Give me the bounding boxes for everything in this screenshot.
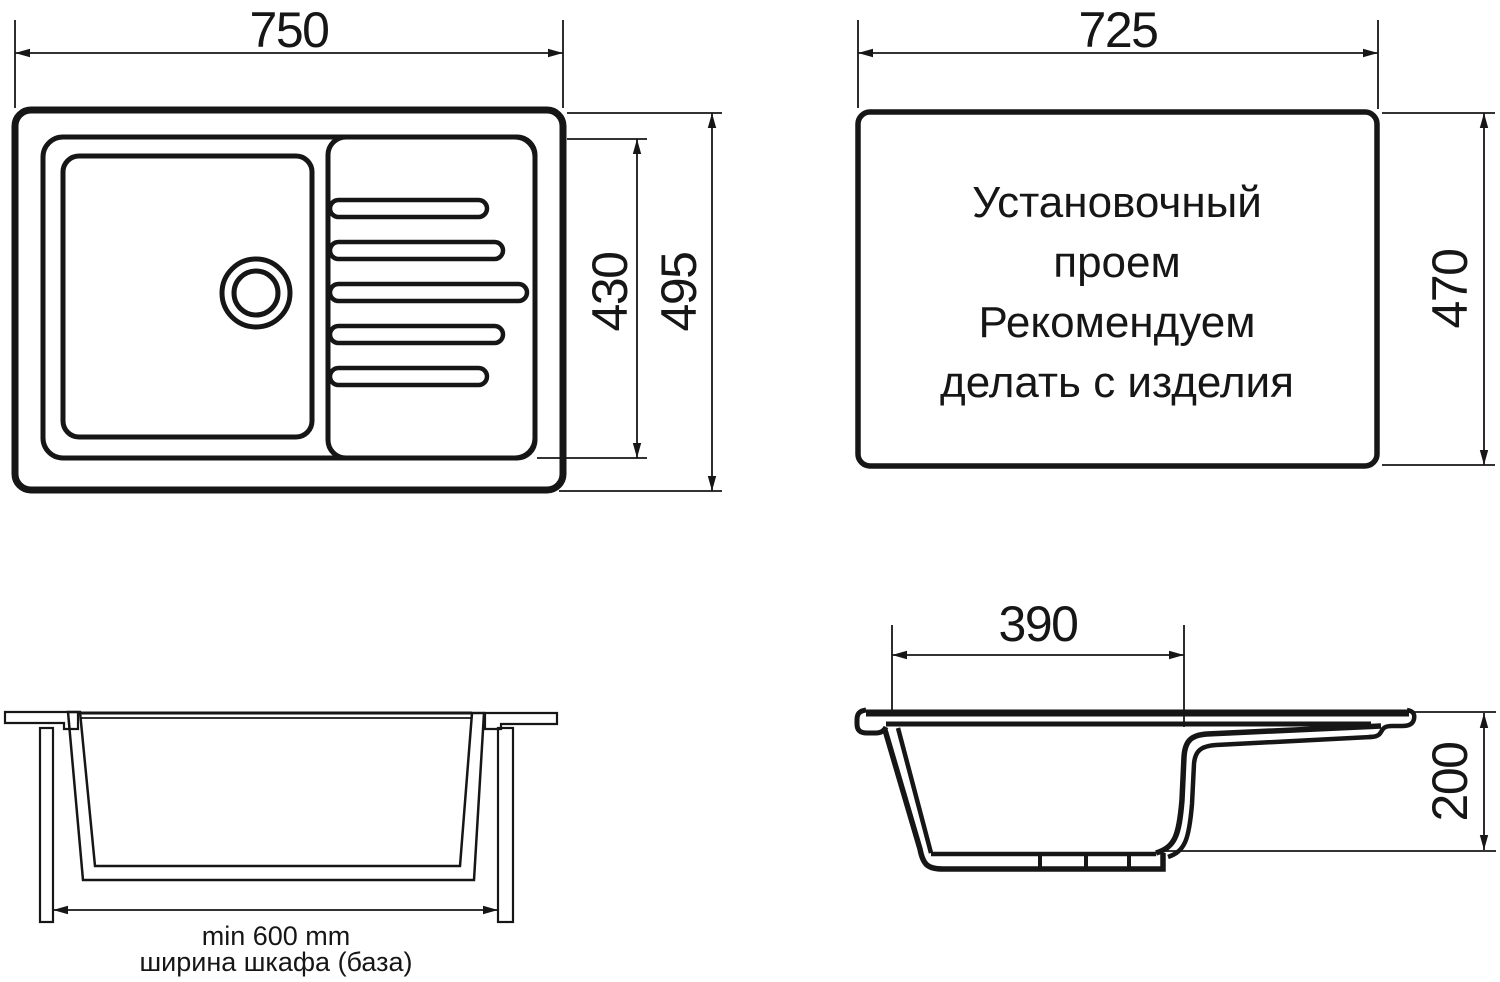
countertop-right-section — [485, 713, 557, 729]
dim-height-470: 470 — [1382, 113, 1495, 465]
groove-4 — [330, 326, 503, 343]
profile-bowl-outer-wall — [885, 730, 1163, 869]
groove-5 — [330, 368, 487, 385]
dim-bowl-width-390: 390 — [892, 596, 1184, 727]
dim-width-725: 725 — [858, 2, 1378, 109]
dim-cabinet-width: min 600 mm ширина шкафа (база) — [53, 910, 498, 977]
dim-430-label: 430 — [582, 253, 638, 332]
cutout-note: Установочный проем Рекомендуем делать с … — [940, 178, 1294, 407]
cutout-outline — [858, 112, 1377, 466]
groove-2 — [330, 242, 503, 259]
cabinet-width-caption: ширина шкафа (база) — [139, 947, 412, 977]
note-line-1: Установочный — [972, 178, 1262, 227]
note-line-2: проем — [1053, 238, 1181, 287]
profile-bowl-right-wall-inner — [1168, 737, 1371, 857]
note-line-4: делать с изделия — [940, 358, 1294, 407]
dim-390-label: 390 — [999, 596, 1078, 652]
sink-dimension-drawing: 750 430 495 Установочный проем Рекоменду… — [0, 0, 1500, 982]
cabinet-section-view: min 600 mm ширина шкафа (база) — [5, 712, 557, 977]
groove-3 — [330, 284, 527, 301]
dim-width-750: 750 — [15, 2, 563, 108]
dim-height-430: 430 — [537, 139, 647, 458]
sink-bowl-section — [68, 712, 484, 880]
installation-cutout-view: Установочный проем Рекомендуем делать с … — [858, 2, 1495, 466]
drainboard-outline — [328, 137, 535, 458]
cabinet-wall-left-section — [40, 728, 53, 922]
note-line-3: Рекомендуем — [978, 298, 1255, 347]
bowl-inner-outline — [63, 156, 312, 437]
groove-1 — [330, 200, 487, 217]
dim-470-label: 470 — [1422, 250, 1478, 329]
drawing-canvas: 750 430 495 Установочный проем Рекоменду… — [0, 0, 1500, 982]
side-profile-view: 390 200 — [857, 596, 1496, 869]
drain-hole-inner-circle — [234, 271, 278, 315]
cabinet-wall-right-section — [498, 728, 513, 922]
drainboard-grooves — [330, 200, 527, 385]
dim-200-label: 200 — [1422, 743, 1478, 822]
sink-top-view: 750 430 495 — [15, 2, 722, 491]
dim-495-label: 495 — [651, 253, 707, 332]
dim-725-label: 725 — [1079, 2, 1158, 58]
dim-750-label: 750 — [250, 2, 329, 58]
